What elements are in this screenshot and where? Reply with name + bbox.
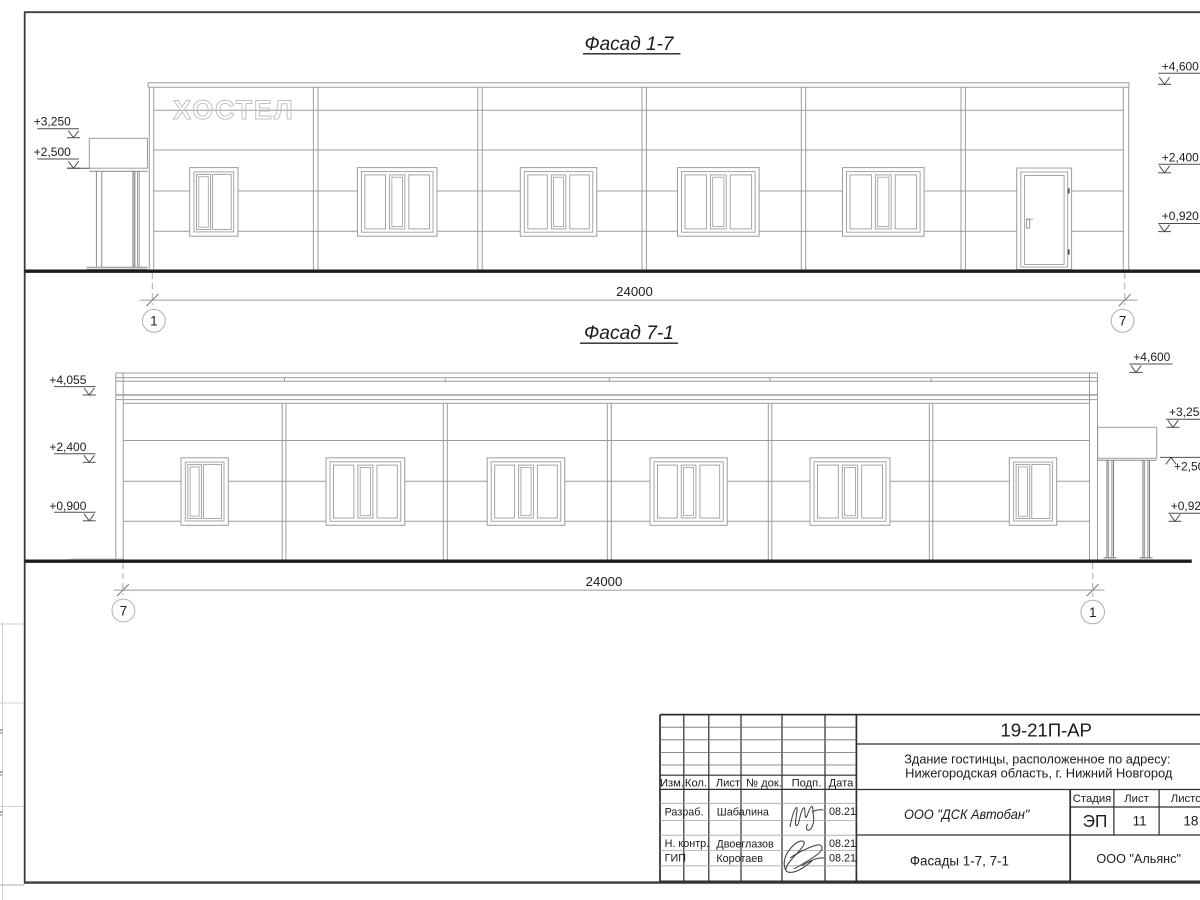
svg-text:+4,600: +4,600	[1133, 350, 1170, 364]
svg-text:Изм.: Изм.	[660, 777, 684, 789]
svg-text:+0,900: +0,900	[49, 499, 86, 513]
svg-text:08.21: 08.21	[829, 852, 856, 864]
svg-text:Фасад 1-7: Фасад 1-7	[585, 34, 675, 55]
svg-text:Фасады 1-7, 7-1: Фасады 1-7, 7-1	[910, 853, 1009, 868]
svg-text:+2,500: +2,500	[1174, 459, 1200, 473]
svg-text:+0,920: +0,920	[1162, 209, 1199, 223]
svg-text:№ док.: № док.	[746, 777, 782, 789]
svg-text:+4,055: +4,055	[49, 373, 86, 387]
svg-text:+2,400: +2,400	[1162, 150, 1199, 164]
svg-text:08.21: 08.21	[829, 806, 856, 818]
svg-text:08.21: 08.21	[829, 838, 856, 850]
svg-text:Кол.: Кол.	[685, 777, 707, 789]
svg-text:+2,400: +2,400	[49, 440, 86, 454]
svg-text:ООО "Альянс": ООО "Альянс"	[1096, 851, 1181, 866]
svg-text:7: 7	[1119, 314, 1127, 329]
svg-text:11: 11	[1133, 813, 1147, 828]
svg-text:Дата: Дата	[829, 777, 855, 789]
svg-text:+0,920: +0,920	[1171, 499, 1200, 513]
svg-text:Стадия: Стадия	[1073, 793, 1112, 805]
svg-text:+4,600: +4,600	[1162, 60, 1199, 74]
svg-text:18: 18	[1183, 813, 1198, 828]
svg-text:Здание гостинцы, расположенное: Здание гостинцы, расположенное по адресу…	[904, 751, 1170, 766]
svg-text:Коротаев: Коротаев	[716, 853, 763, 865]
svg-text:1: 1	[1089, 605, 1097, 620]
svg-text:ЭП: ЭП	[1083, 811, 1108, 831]
svg-text:1: 1	[150, 314, 158, 329]
svg-text:Нижегородская область, г. Нижн: Нижегородская область, г. Нижний Новгоро…	[905, 765, 1173, 780]
svg-text:ГИП: ГИП	[665, 853, 686, 865]
svg-text:ООО "ДСК Автобан": ООО "ДСК Автобан"	[904, 806, 1030, 822]
svg-text:Разраб.: Разраб.	[665, 807, 704, 819]
svg-text:ХОСТЕЛ: ХОСТЕЛ	[173, 95, 294, 125]
svg-text:Листов: Листов	[1171, 793, 1200, 805]
svg-text:Подп.: Подп.	[792, 777, 822, 789]
svg-text:Н. контр.: Н. контр.	[665, 838, 710, 850]
svg-text:Лист: Лист	[1124, 793, 1149, 805]
svg-text:Шабалина: Шабалина	[717, 806, 769, 818]
svg-text:Двоеглазов: Двоеглазов	[716, 838, 774, 850]
svg-text:19-21П-АР: 19-21П-АР	[1000, 720, 1092, 741]
svg-text:+3,250: +3,250	[34, 115, 71, 129]
svg-text:24000: 24000	[616, 284, 653, 299]
svg-text:Лист: Лист	[716, 777, 740, 789]
svg-text:+2,500: +2,500	[34, 145, 71, 159]
svg-text:7: 7	[120, 603, 128, 618]
svg-text:Фасад 7-1: Фасад 7-1	[584, 323, 674, 344]
svg-text:24000: 24000	[586, 574, 623, 589]
svg-text:+3,250: +3,250	[1169, 405, 1200, 419]
